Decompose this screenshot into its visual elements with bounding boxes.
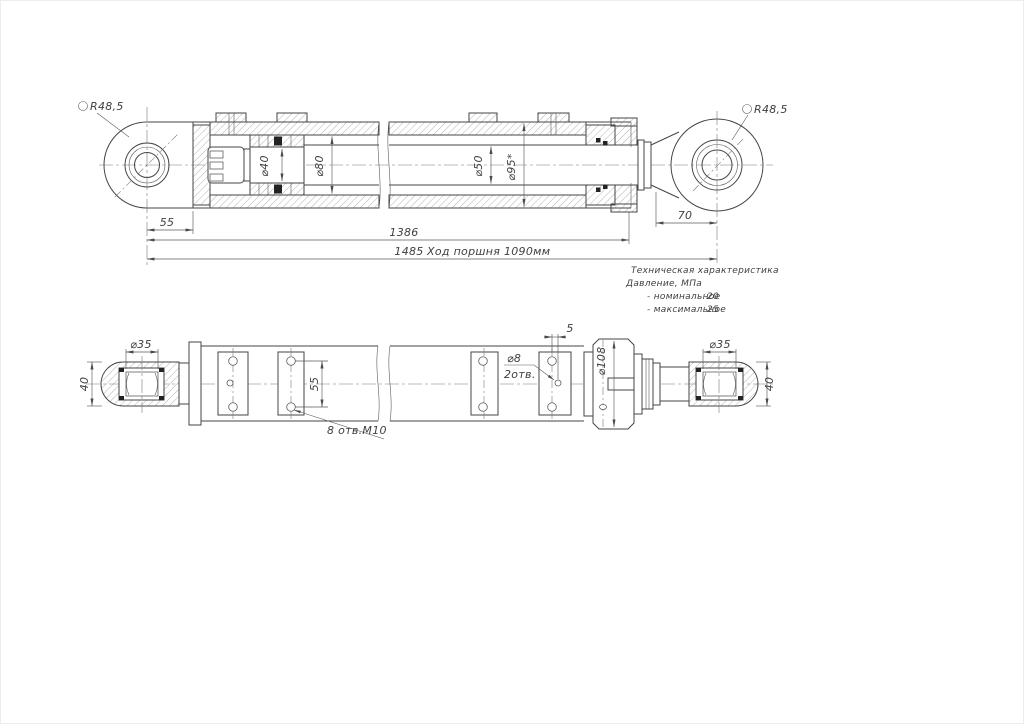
drawing-canvas: R48,5 <box>0 0 1024 724</box>
right-eye-radius-label: R48,5 <box>732 103 788 140</box>
left-eye-width-text: 40 <box>78 377 91 392</box>
dim-overall-length: 1485 Ход поршня 1090мм <box>147 245 717 259</box>
mount-plate-2 <box>278 348 304 419</box>
dim-body-length-text: 1386 <box>389 226 418 239</box>
rod-journal-dia-label: ⌀40 <box>258 155 271 177</box>
port-hole-right <box>555 380 561 386</box>
mount-plate-1 <box>218 348 248 419</box>
mount-plate-3 <box>471 348 498 419</box>
port-boss-b <box>277 113 307 122</box>
dim-body-length: 1386 <box>147 212 629 244</box>
seal-ring-top <box>274 137 282 146</box>
circle-symbol <box>743 105 752 114</box>
left-eye-stub <box>179 363 189 404</box>
dim-overall-text: 1485 <box>394 245 423 258</box>
mount-plate-4 <box>539 348 571 419</box>
gland-cap-top <box>611 118 637 126</box>
right-eye-bore-text: ⌀35 <box>709 338 731 351</box>
circle-symbol <box>79 102 88 111</box>
gland-cap-bottom <box>611 204 637 212</box>
bottom-left-eye <box>101 356 189 413</box>
port-boss-c <box>469 113 497 122</box>
left-radius-leader-line <box>97 113 129 137</box>
right-eye <box>671 111 763 265</box>
piston-washer <box>244 149 250 181</box>
top-view-section: R48,5 <box>79 100 788 265</box>
right-eye-width-text: 40 <box>763 377 776 392</box>
spec-block: Техническая характеристика Давление, МПа… <box>625 266 779 315</box>
mount-holes-text: 8 отв.М10 <box>327 424 387 437</box>
dim-rod-end: 70 <box>656 192 717 227</box>
right-bearing-race <box>703 372 736 396</box>
bottom-collar: ⌀108 <box>584 339 634 429</box>
seal-ring-bottom <box>274 185 282 194</box>
rod-dimension: ⌀50 <box>472 147 491 184</box>
spec-pressure-label: Давление, МПа <box>625 279 702 289</box>
rod-dia-label: ⌀50 <box>472 155 485 177</box>
port-hole-left <box>227 380 233 386</box>
dim-eye-offset-text: 55 <box>160 216 175 229</box>
spec-title: Техническая характеристика <box>631 266 779 276</box>
dim-rod-end-text: 70 <box>678 209 693 222</box>
spec-nominal-value: 20 <box>707 292 719 302</box>
stroke-note-text: Ход поршня 1090мм <box>426 245 550 258</box>
right-eye-radius-text: R48,5 <box>754 103 788 116</box>
left-eye-radius-label: R48,5 <box>79 100 130 137</box>
dim-eye-offset: 55 <box>147 211 193 234</box>
port-dia-text: ⌀8 <box>507 352 521 365</box>
spec-maximum-value: 25 <box>707 305 719 315</box>
left-eye-bore-text: ⌀35 <box>130 338 152 351</box>
end-cap-section <box>193 125 210 205</box>
port-qty-text: 2отв. <box>504 368 536 381</box>
left-eye-radius-text: R48,5 <box>90 100 124 113</box>
piston-assembly: ⌀40 <box>208 135 304 195</box>
bottom-view: ⌀35 40 <box>78 322 776 439</box>
flange-dia-text: ⌀108 <box>595 347 608 376</box>
bottom-right-eye <box>689 356 758 413</box>
piston-dia-label: ⌀80 <box>313 155 326 177</box>
collar-spacer <box>584 352 593 416</box>
port-offset-text: 5 <box>566 322 573 335</box>
hole-pitch-text: 55 <box>308 377 321 392</box>
left-eye <box>104 107 193 265</box>
barrel-dia-label: ⌀95* <box>505 153 518 181</box>
collar-port-hole <box>600 405 607 410</box>
mount-holes-callout: 8 отв.М10 <box>294 410 387 439</box>
right-radius-leader-line <box>732 115 748 140</box>
hydraulic-cylinder-drawing: R48,5 <box>1 1 1024 725</box>
collar-keyway <box>608 378 634 390</box>
end-flange <box>189 342 201 425</box>
